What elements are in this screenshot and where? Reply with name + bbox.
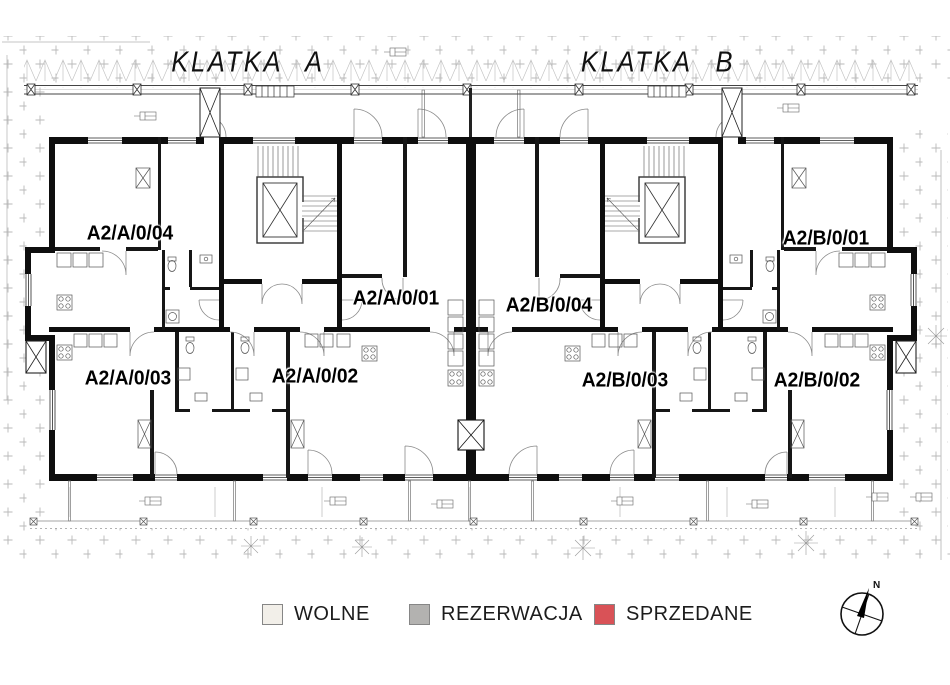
wolne-label: WOLNE — [294, 603, 370, 626]
legend-item-wolne: WOLNE — [262, 602, 370, 626]
section-title-klatka-a: KLATKA A — [171, 47, 324, 80]
apartment-a2-a-0-03[interactable]: A2/A/0/03 — [85, 368, 171, 391]
apartment-a2-b-0-02[interactable]: A2/B/0/02 — [774, 370, 860, 393]
sprzedane-swatch — [594, 604, 615, 625]
rezerwacja-label: REZERWACJA — [441, 603, 583, 626]
sprzedane-label: SPRZEDANE — [626, 603, 753, 626]
apartment-a2-b-0-03[interactable]: A2/B/0/03 — [582, 370, 668, 393]
section-title-klatka-b: KLATKA B — [581, 47, 735, 80]
apartment-a2-a-0-04[interactable]: A2/A/0/04 — [87, 223, 173, 246]
compass-rose: N — [836, 580, 892, 644]
apartment-a2-b-0-04[interactable]: A2/B/0/04 — [506, 295, 592, 318]
wolne-swatch — [262, 604, 283, 625]
legend-item-rezerwacja: REZERWACJA — [409, 602, 583, 626]
apartment-a2-a-0-02[interactable]: A2/A/0/02 — [272, 366, 358, 389]
floorplan-page: KLATKA A KLATKA B A2/A/0/04 A2/A/0/01 A2… — [0, 0, 950, 685]
floorplan-canvas — [0, 0, 950, 570]
compass-icon — [836, 580, 892, 644]
compass-north-label: N — [873, 580, 880, 591]
rezerwacja-swatch — [409, 604, 430, 625]
apartment-a2-a-0-01[interactable]: A2/A/0/01 — [353, 288, 439, 311]
legend-item-sprzedane: SPRZEDANE — [594, 602, 753, 626]
apartment-a2-b-0-01[interactable]: A2/B/0/01 — [783, 228, 869, 251]
